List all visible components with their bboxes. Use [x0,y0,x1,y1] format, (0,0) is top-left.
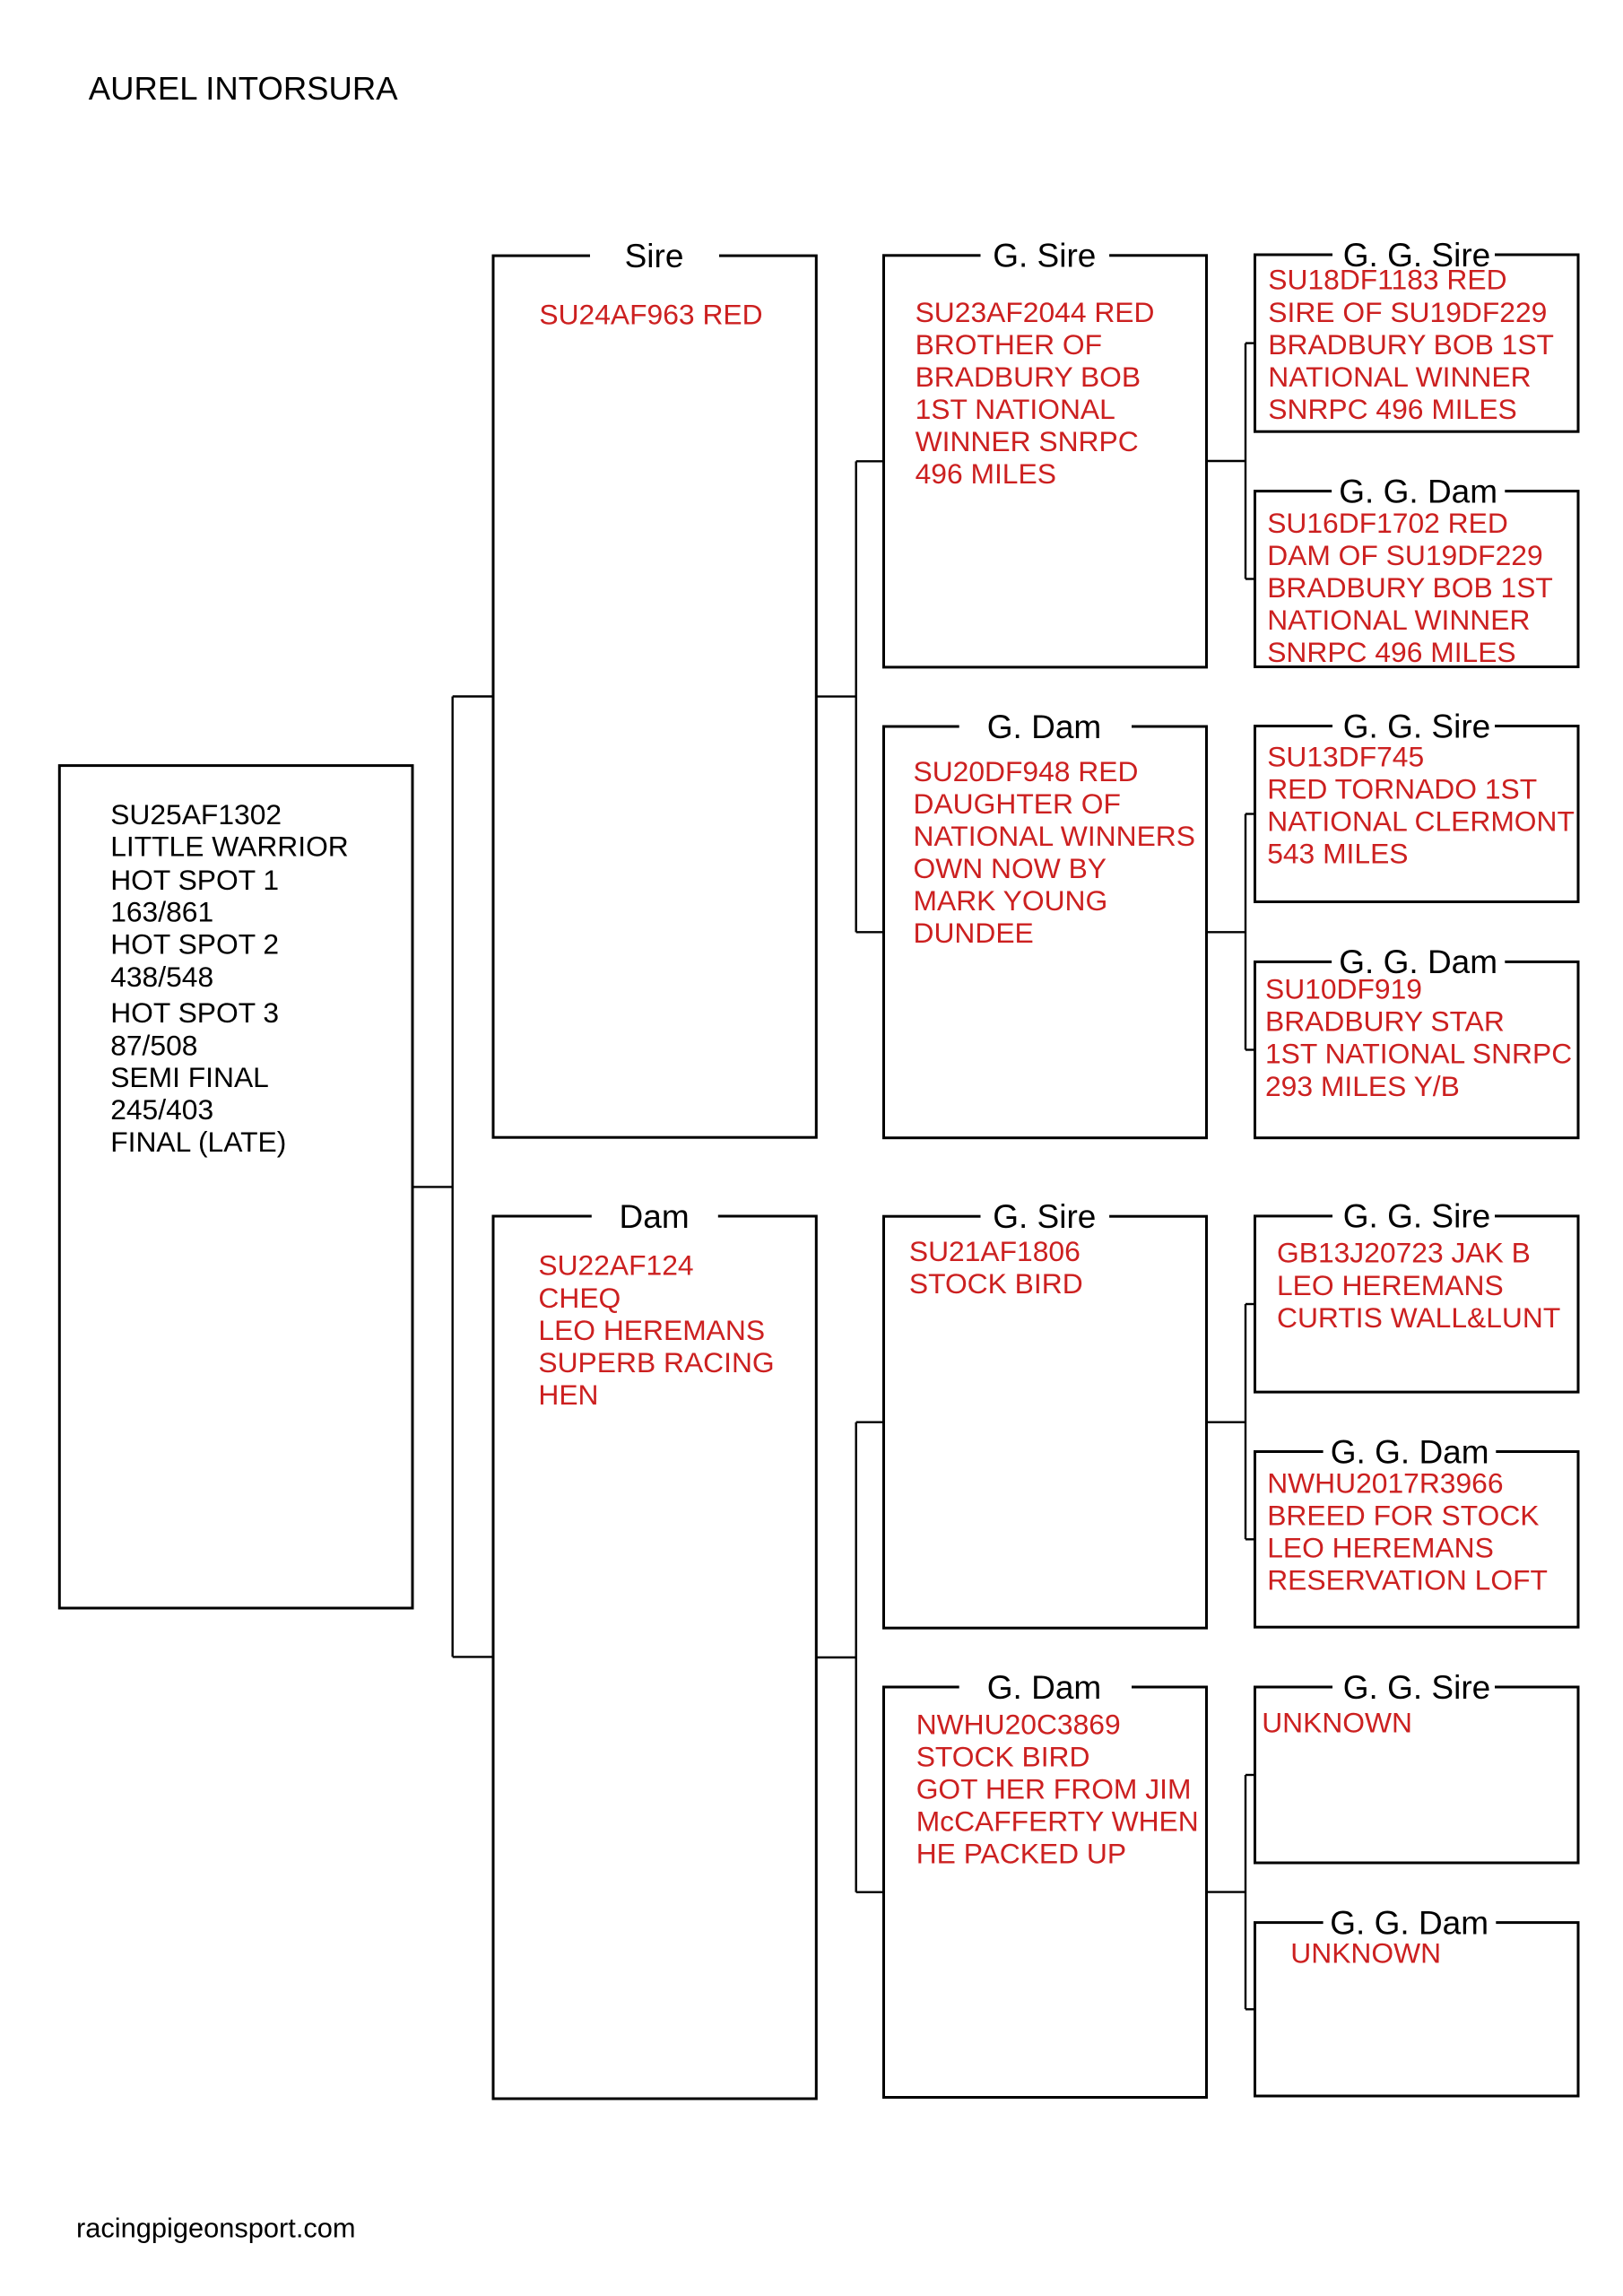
svg-text:HOT SPOT 3: HOT SPOT 3 [110,996,279,1029]
svg-text:G. G. Dam: G. G. Dam [1330,1904,1488,1941]
svg-text:NATIONAL CLERMONT: NATIONAL CLERMONT [1267,805,1575,838]
svg-text:496 MILES: 496 MILES [916,457,1056,490]
svg-text:BRADBURY BOB: BRADBURY BOB [916,361,1141,393]
svg-text:SU22AF124: SU22AF124 [538,1249,693,1282]
svg-text:CURTIS WALL&LUNT: CURTIS WALL&LUNT [1277,1301,1560,1334]
svg-text:SUPERB RACING: SUPERB RACING [538,1346,774,1378]
svg-text:Sire: Sire [625,238,684,274]
svg-text:NATIONAL WINNER: NATIONAL WINNER [1267,604,1530,636]
svg-text:OWN NOW BY: OWN NOW BY [914,852,1107,884]
svg-text:FINAL (LATE): FINAL (LATE) [110,1126,286,1158]
svg-text:SU18DF1183 RED: SU18DF1183 RED [1268,264,1506,296]
svg-text:HEN: HEN [538,1378,598,1411]
svg-text:DAUGHTER OF: DAUGHTER OF [914,787,1121,820]
svg-text:G. Dam: G. Dam [987,1669,1101,1706]
svg-text:STOCK BIRD: STOCK BIRD [909,1267,1083,1300]
svg-text:LEO HEREMANS: LEO HEREMANS [538,1314,765,1346]
svg-text:racingpigeonsport.com: racingpigeonsport.com [76,2213,356,2244]
svg-text:245/403: 245/403 [110,1093,213,1126]
svg-text:293 MILES Y/B: 293 MILES Y/B [1265,1070,1460,1102]
svg-text:SEMI FINAL: SEMI FINAL [110,1061,269,1093]
svg-text:CHEQ: CHEQ [538,1282,621,1314]
svg-text:87/508: 87/508 [110,1029,197,1061]
svg-text:BRADBURY BOB 1ST: BRADBURY BOB 1ST [1268,328,1554,361]
svg-text:NWHU20C3869: NWHU20C3869 [916,1708,1121,1740]
svg-text:1ST NATIONAL SNRPC: 1ST NATIONAL SNRPC [1265,1038,1572,1070]
svg-text:Dam: Dam [620,1198,690,1235]
svg-text:LEO HEREMANS: LEO HEREMANS [1277,1269,1504,1301]
svg-text:G. G. Sire: G. G. Sire [1343,708,1490,744]
svg-text:G. G. Dam: G. G. Dam [1339,473,1497,509]
svg-text:SNRPC 496 MILES: SNRPC 496 MILES [1267,636,1515,668]
svg-text:MARK YOUNG: MARK YOUNG [914,884,1108,917]
svg-text:SU16DF1702 RED: SU16DF1702 RED [1267,507,1508,539]
svg-text:G. Dam: G. Dam [987,709,1101,745]
svg-text:GOT HER FROM JIM: GOT HER FROM JIM [916,1773,1192,1805]
svg-text:SU24AF963 RED: SU24AF963 RED [539,299,762,331]
svg-text:STOCK BIRD: STOCK BIRD [916,1741,1090,1773]
svg-text:SIRE OF SU19DF229: SIRE OF SU19DF229 [1268,296,1547,328]
svg-text:DAM OF SU19DF229: DAM OF SU19DF229 [1267,539,1542,571]
svg-text:UNKNOWN: UNKNOWN [1290,1936,1441,1969]
svg-text:BRADBURY BOB 1ST: BRADBURY BOB 1ST [1267,571,1553,604]
svg-text:1ST NATIONAL: 1ST NATIONAL [916,393,1115,425]
svg-text:163/861: 163/861 [110,896,213,928]
svg-text:LITTLE WARRIOR: LITTLE WARRIOR [110,831,349,863]
svg-text:NATIONAL WINNER: NATIONAL WINNER [1268,361,1531,393]
svg-text:NATIONAL WINNERS: NATIONAL WINNERS [914,820,1195,852]
svg-text:543 MILES: 543 MILES [1267,838,1408,870]
svg-text:SU25AF1302: SU25AF1302 [110,798,282,831]
svg-text:SU21AF1806: SU21AF1806 [909,1235,1081,1267]
svg-text:438/548: 438/548 [110,961,213,993]
svg-text:LEO HEREMANS: LEO HEREMANS [1267,1532,1494,1564]
svg-text:G. Sire: G. Sire [993,238,1096,274]
svg-text:McCAFFERTY WHEN: McCAFFERTY WHEN [916,1805,1199,1838]
svg-text:BROTHER OF: BROTHER OF [916,328,1102,361]
svg-text:BREED FOR STOCK: BREED FOR STOCK [1267,1500,1539,1532]
svg-text:NWHU2017R3966: NWHU2017R3966 [1267,1467,1503,1500]
svg-text:G. G. Dam: G. G. Dam [1331,1433,1489,1470]
svg-text:G. G. Sire: G. G. Sire [1343,1669,1490,1706]
svg-text:HOT SPOT 2: HOT SPOT 2 [110,928,279,961]
svg-text:AUREL INTORSURA: AUREL INTORSURA [89,70,398,107]
svg-text:WINNER SNRPC: WINNER SNRPC [916,425,1139,457]
svg-text:RESERVATION LOFT: RESERVATION LOFT [1267,1564,1548,1596]
svg-text:BRADBURY STAR: BRADBURY STAR [1265,1005,1505,1038]
svg-text:RED TORNADO 1ST: RED TORNADO 1ST [1267,773,1537,805]
svg-text:GB13J20723 JAK B: GB13J20723 JAK B [1277,1237,1531,1269]
svg-text:SU10DF919: SU10DF919 [1265,973,1422,1005]
svg-text:SNRPC 496 MILES: SNRPC 496 MILES [1268,393,1516,425]
svg-text:HE PACKED UP: HE PACKED UP [916,1838,1126,1870]
svg-text:G. Sire: G. Sire [993,1198,1096,1235]
svg-text:UNKNOWN: UNKNOWN [1262,1707,1412,1739]
svg-text:DUNDEE: DUNDEE [914,917,1034,949]
svg-text:SU13DF745: SU13DF745 [1267,741,1424,773]
svg-text:SU20DF948 RED: SU20DF948 RED [914,755,1139,787]
svg-text:SU23AF2044 RED: SU23AF2044 RED [916,296,1155,328]
svg-text:HOT SPOT 1: HOT SPOT 1 [110,864,279,896]
svg-text:G. G. Sire: G. G. Sire [1343,1198,1490,1235]
